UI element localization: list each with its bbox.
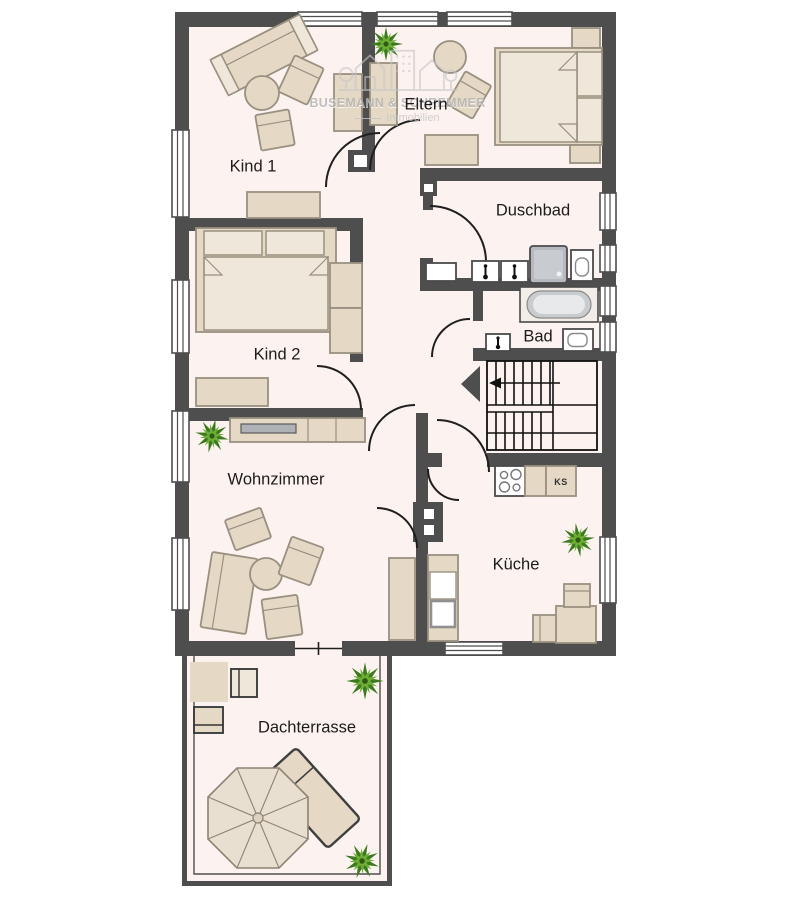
toilet: [571, 250, 593, 281]
room-label-kind2: Kind 2: [254, 346, 301, 365]
nightstand: [570, 145, 600, 163]
room-label-kueche: Küche: [493, 556, 540, 575]
plant-icon: [369, 27, 403, 61]
terrace-chair: [194, 707, 223, 733]
bathtub: [520, 287, 598, 322]
window: [600, 245, 616, 272]
desk: [334, 74, 362, 131]
sink-unit: [428, 555, 458, 641]
round-table: [245, 76, 279, 110]
washbasin: [486, 334, 510, 351]
kitchen-table: [556, 606, 596, 643]
room-label-dachterrasse: Dachterrasse: [258, 719, 356, 738]
dresser: [247, 192, 320, 218]
dresser: [196, 378, 268, 406]
terrace-table: [190, 662, 228, 702]
room-label-bad: Bad: [523, 328, 552, 347]
room-label-kind1: Kind 1: [230, 158, 277, 177]
stove: [495, 466, 525, 496]
wardrobe: [330, 263, 362, 308]
washbasin: [501, 261, 528, 282]
desk: [389, 558, 415, 640]
round-table: [434, 41, 466, 73]
round-table: [250, 558, 282, 590]
window: [377, 12, 438, 26]
window: [172, 411, 189, 482]
window: [172, 538, 189, 610]
parasol: [208, 768, 308, 868]
shower: [530, 246, 567, 283]
window: [172, 280, 189, 353]
window: [447, 12, 512, 26]
radiator: [426, 263, 456, 281]
nightstand: [572, 28, 600, 48]
floorplan-drawing: [0, 0, 791, 900]
washbasin: [472, 261, 499, 282]
toilet: [563, 329, 593, 351]
window: [445, 642, 503, 655]
dresser: [370, 63, 397, 125]
window: [172, 130, 189, 217]
room-label-eltern: Eltern: [404, 96, 447, 115]
room-label-wohnzimmer: Wohnzimmer: [228, 471, 325, 490]
window: [600, 322, 616, 352]
sideboard: [230, 418, 365, 442]
dresser: [425, 135, 478, 165]
plant-icon: [346, 662, 383, 699]
fridge-label: KS: [554, 477, 568, 487]
chair: [533, 615, 556, 642]
window: [600, 193, 616, 230]
wardrobe: [330, 308, 362, 353]
terrace-chair: [231, 669, 257, 697]
window: [600, 286, 616, 316]
window: [600, 537, 616, 603]
terrace-door: [295, 641, 342, 656]
chair: [564, 584, 590, 607]
window: [298, 12, 362, 26]
counter: [525, 466, 546, 496]
floorplan-canvas: BUSEMANN & SCHREMMER Immobilien Kind 1 E…: [0, 0, 791, 900]
room-label-duschbad: Duschbad: [496, 202, 570, 221]
